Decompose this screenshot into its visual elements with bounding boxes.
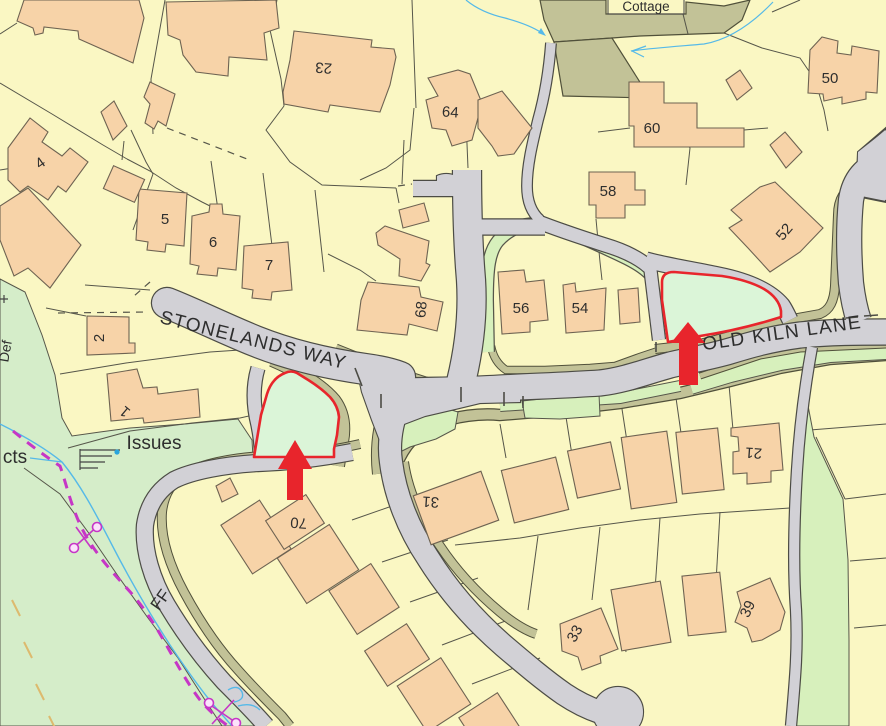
svg-text:cts: cts	[3, 447, 27, 468]
svg-text:Cottage: Cottage	[622, 0, 669, 14]
svg-text:31: 31	[422, 492, 440, 510]
svg-text:21: 21	[745, 443, 763, 461]
svg-text:64: 64	[441, 103, 459, 121]
svg-text:7: 7	[265, 257, 273, 274]
svg-text:70: 70	[290, 513, 308, 531]
svg-text:5: 5	[161, 211, 169, 228]
svg-text:2: 2	[91, 334, 108, 342]
svg-text:56: 56	[513, 300, 530, 317]
svg-text:68: 68	[412, 301, 430, 319]
svg-text:54: 54	[572, 300, 589, 317]
svg-text:23: 23	[315, 58, 333, 76]
svg-text:50: 50	[822, 70, 839, 87]
svg-text:6: 6	[209, 234, 217, 251]
svg-text:60: 60	[644, 120, 661, 137]
svg-text:Issues: Issues	[127, 433, 182, 454]
svg-text:58: 58	[600, 183, 617, 200]
